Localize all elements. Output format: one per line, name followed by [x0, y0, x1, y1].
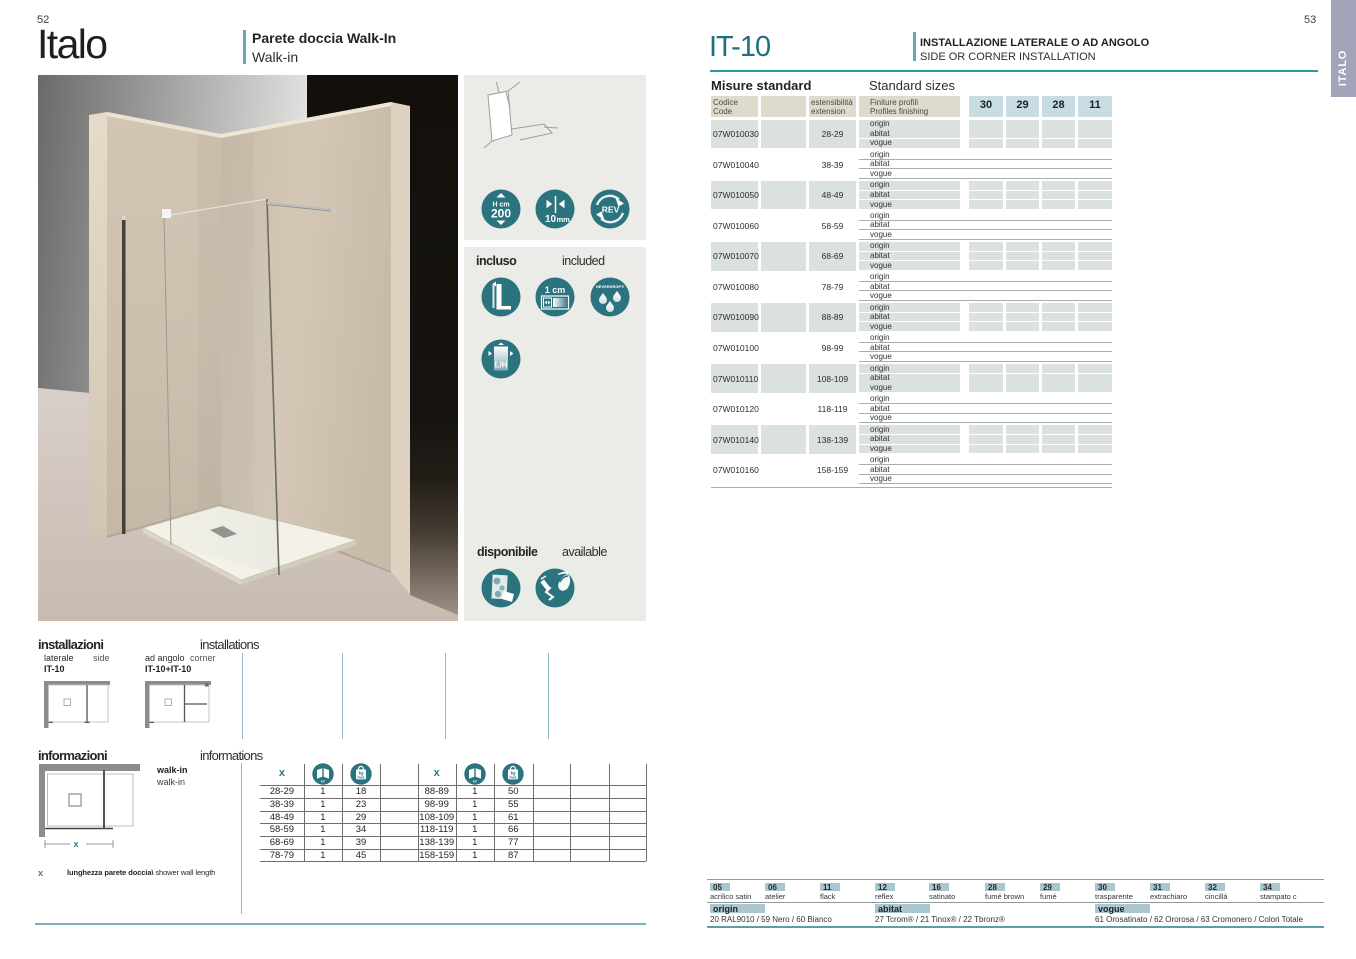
- svg-text:L/H: L/H: [495, 361, 508, 370]
- svg-text:nr: nr: [473, 778, 477, 783]
- svg-text:nr: nr: [321, 778, 325, 783]
- svg-text:mm: mm: [557, 215, 571, 224]
- svg-text:REV: REV: [602, 205, 620, 215]
- svg-text:NEVERDROP®: NEVERDROP®: [596, 284, 624, 289]
- svg-text:max: max: [510, 775, 517, 779]
- svg-text:x: x: [73, 839, 78, 849]
- svg-text:1 cm: 1 cm: [545, 285, 566, 295]
- svg-text:max: max: [357, 775, 364, 779]
- svg-text:10: 10: [545, 214, 557, 225]
- svg-text:200: 200: [491, 207, 511, 221]
